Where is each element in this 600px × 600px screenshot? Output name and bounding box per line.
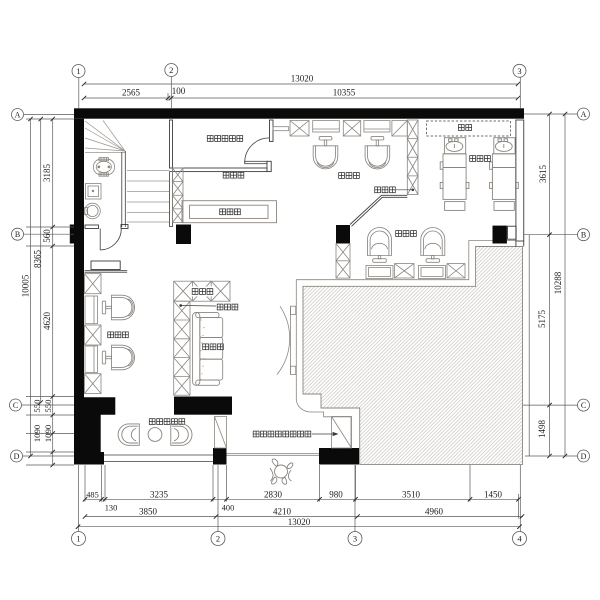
svg-text:3850: 3850 (139, 507, 158, 517)
svg-text:2830: 2830 (264, 489, 283, 499)
svg-text:10288: 10288 (553, 271, 563, 294)
svg-text:1450: 1450 (484, 489, 503, 499)
svg-text:485: 485 (86, 490, 98, 499)
svg-text:550: 550 (43, 399, 53, 413)
svg-text:B: B (581, 231, 586, 240)
svg-text:980: 980 (329, 489, 343, 499)
svg-text:C: C (13, 401, 18, 410)
svg-text:A: A (15, 111, 21, 120)
svg-text:3185: 3185 (42, 164, 52, 183)
svg-text:B: B (15, 230, 20, 239)
svg-text:8365: 8365 (33, 250, 43, 269)
svg-text:1090: 1090 (43, 424, 53, 442)
svg-text:1498: 1498 (537, 420, 547, 439)
svg-text:3510: 3510 (402, 489, 421, 499)
svg-text:400: 400 (222, 503, 234, 512)
svg-text:3235: 3235 (150, 489, 169, 499)
svg-text:3: 3 (517, 66, 521, 76)
svg-text:550: 550 (32, 399, 42, 413)
svg-text:D: D (14, 452, 20, 461)
svg-text:2: 2 (169, 65, 173, 75)
svg-text:1: 1 (76, 66, 80, 76)
svg-text:13020: 13020 (288, 517, 311, 527)
svg-text:100: 100 (172, 86, 186, 96)
svg-text:3615: 3615 (538, 165, 548, 184)
svg-text:2: 2 (216, 534, 220, 544)
svg-text:A: A (581, 110, 587, 119)
svg-text:4960: 4960 (425, 507, 444, 517)
svg-text:1090: 1090 (32, 424, 42, 442)
svg-text:10355: 10355 (333, 88, 356, 98)
svg-text:5175: 5175 (537, 310, 547, 329)
svg-text:10005: 10005 (20, 274, 30, 297)
svg-text:560: 560 (42, 229, 52, 243)
svg-text:D: D (581, 452, 587, 461)
svg-text:13020: 13020 (291, 74, 314, 84)
svg-text:3: 3 (353, 534, 357, 544)
svg-text:2565: 2565 (122, 88, 141, 98)
svg-text:1: 1 (76, 534, 80, 544)
svg-text:4620: 4620 (42, 312, 52, 331)
svg-text:C: C (581, 401, 586, 410)
svg-text:4210: 4210 (273, 507, 292, 517)
svg-text:130: 130 (105, 503, 117, 512)
